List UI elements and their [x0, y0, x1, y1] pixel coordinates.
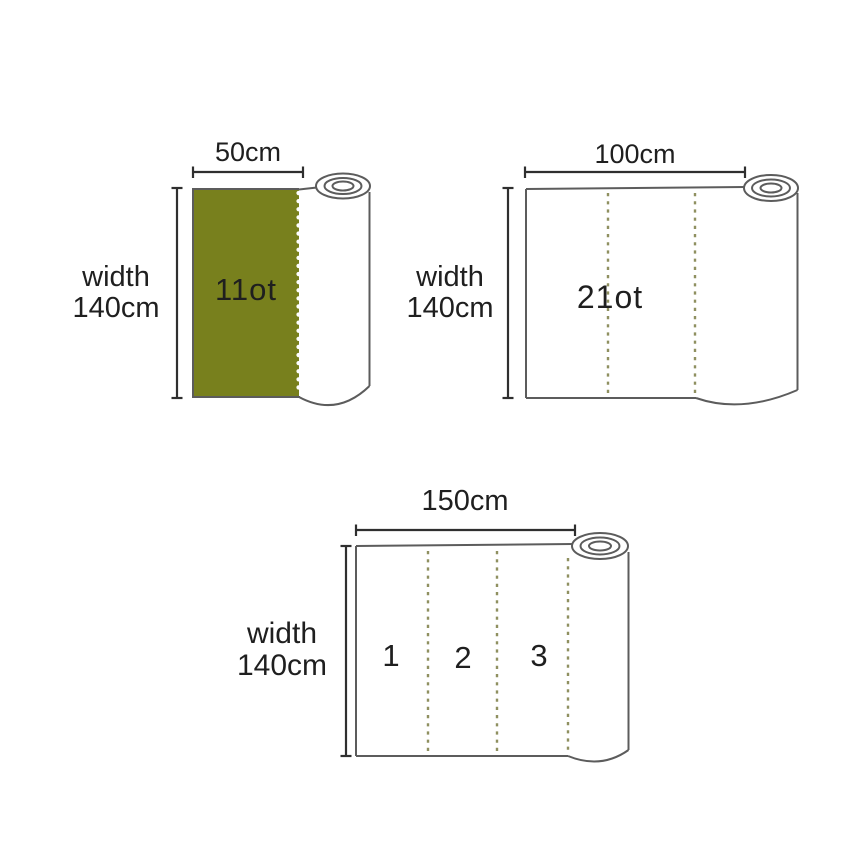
fig3-height-label-word: width: [222, 618, 342, 650]
fig3-segment-label-1: 1: [361, 640, 421, 673]
fig2-height-label-word: width: [390, 262, 510, 293]
fig2-width-dimension-label: 100cm: [575, 140, 695, 168]
fig3-width-dimension-label: 150cm: [405, 486, 525, 516]
fig3-segment-label-2: 2: [433, 642, 493, 675]
fig2-roll-end-ellipse: [744, 175, 798, 201]
fig2-height-dimension-label: width 140cm: [390, 262, 510, 324]
fig2-roll-bottom-curve: [696, 390, 798, 404]
fig1-height-label-word: width: [56, 262, 176, 293]
fig1-height-dimension-label: width 140cm: [56, 262, 176, 324]
fig1-height-label-value: 140cm: [56, 293, 176, 324]
fig1-fabric-outline: [299, 188, 370, 406]
fig1-roll-bottom-curve: [299, 386, 370, 405]
fig2-lot-label: 21ot: [550, 281, 670, 315]
fig1-roll-end-ellipse: [316, 174, 370, 199]
fig2-height-label-value: 140cm: [390, 293, 510, 324]
fig1-width-measure-arrow: [193, 167, 303, 179]
fig3-roll-bottom-curve: [568, 750, 629, 762]
fig3-width-measure-arrow: [356, 525, 575, 537]
fabric-size-diagram: 50cm width 140cm 11ot 100cm width 140cm …: [0, 0, 862, 862]
fig1-width-dimension-label: 50cm: [188, 138, 308, 166]
fig1-lot-label: 11ot: [186, 274, 306, 307]
fig3-height-measure-line: [341, 546, 352, 756]
fig3-height-dimension-label: width 140cm: [222, 618, 342, 682]
fig3-height-label-value: 140cm: [222, 650, 342, 682]
fig3-roll-end-ellipse: [572, 533, 628, 559]
fig3-segment-label-3: 3: [509, 640, 569, 673]
diagram-shapes: [0, 0, 862, 862]
